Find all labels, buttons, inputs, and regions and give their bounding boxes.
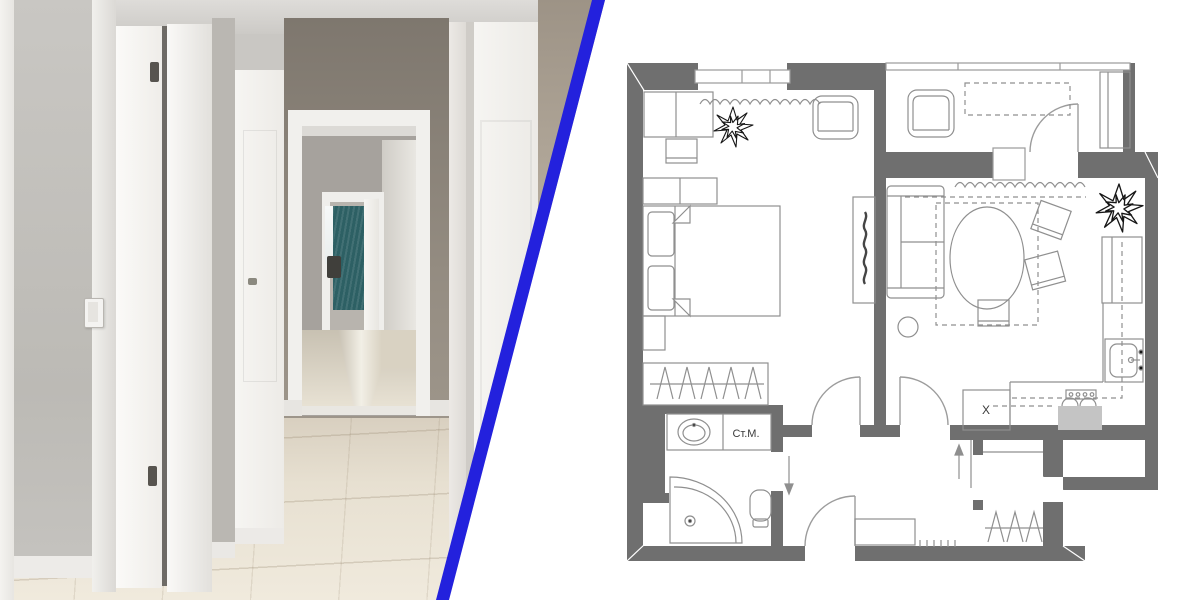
split-image: Ст.М. X — [0, 0, 1200, 600]
balcony-glazing — [886, 63, 1130, 70]
right-panel: Ст.М. X — [0, 0, 1200, 600]
kitchen-sink — [1105, 339, 1143, 382]
balcony-pass-window — [993, 148, 1025, 180]
washing-machine-label: Ст.М. — [732, 428, 759, 440]
fridge-label: X — [982, 403, 990, 417]
